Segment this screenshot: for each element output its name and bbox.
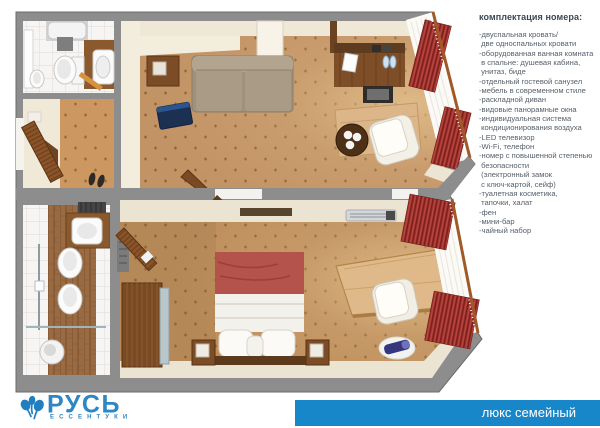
svg-text:ЕССЕНТУКИ: ЕССЕНТУКИ <box>50 415 132 421</box>
